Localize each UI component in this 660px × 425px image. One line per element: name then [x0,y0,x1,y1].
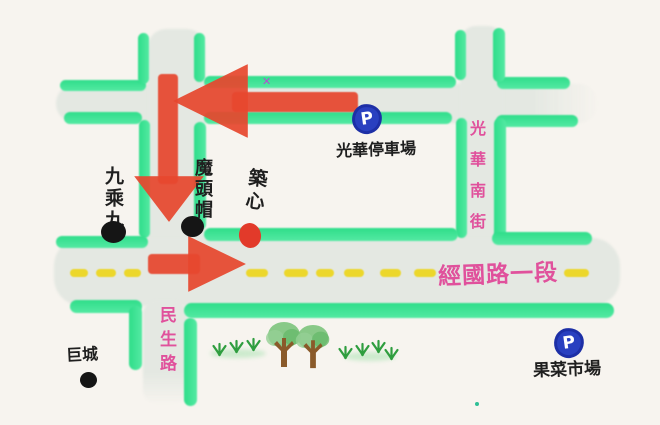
center-line-dash [124,269,141,277]
road-edge [184,303,614,318]
parking-letter: P [561,332,576,354]
road-edge [194,33,205,82]
road-edge [60,80,146,91]
street-label-jingguo: 經國路一段 [437,253,558,291]
center-line-dash [96,269,116,277]
road-edge [129,306,142,370]
poi-dot-motou-hat [181,216,204,237]
tree-icon [295,324,331,374]
road-edge [494,118,506,240]
road-edge [455,30,466,80]
road-edge [492,232,592,245]
road-edge [138,33,149,84]
route-arrow-west-bar [232,92,358,112]
hand-drawn-map: ✕ 經國路一段 民生路 光華南街 九乘九 魔頭帽 築心 巨城 P 光華停車場 P… [0,0,660,425]
poi-label-ju-cheng: 巨城 [65,340,98,366]
poi-dot-ju-cheng [80,372,97,388]
center-line-dash [414,269,436,277]
grass-icon [337,341,354,364]
stray-dot [475,402,479,406]
grass-icon [211,338,228,361]
grass-icon [383,342,400,365]
poi-label-guanghua-parking: 光華停車場 [336,135,417,162]
center-line-dash [380,269,401,277]
road-edge [496,115,578,127]
route-arrow-south-bar [158,74,178,184]
street-label-minsheng: 民生路 [154,306,179,378]
parking-letter: P [359,108,374,130]
road-edge [497,77,570,89]
grass-icon [354,338,371,361]
grass-icon [245,333,262,356]
center-line-dash [284,269,308,277]
grass-icon [228,335,245,358]
poi-dot-nine-x-nine [101,221,126,243]
center-line-dash [564,269,589,277]
center-line-dash [70,269,88,277]
x-mark: ✕ [262,75,271,88]
center-line-dash [246,269,268,277]
road-edge [184,318,197,406]
road-edge [493,28,505,82]
road-edge [64,112,142,124]
poi-label-zhu-xin: 築心 [239,167,271,216]
poi-label-fruit-market: 果菜市場 [533,354,602,381]
center-line-dash [316,269,334,277]
center-line-dash [344,269,364,277]
poi-label-motou-hat: 魔頭帽 [189,158,215,221]
street-label-guanghua-south: 光華南街 [464,120,488,244]
